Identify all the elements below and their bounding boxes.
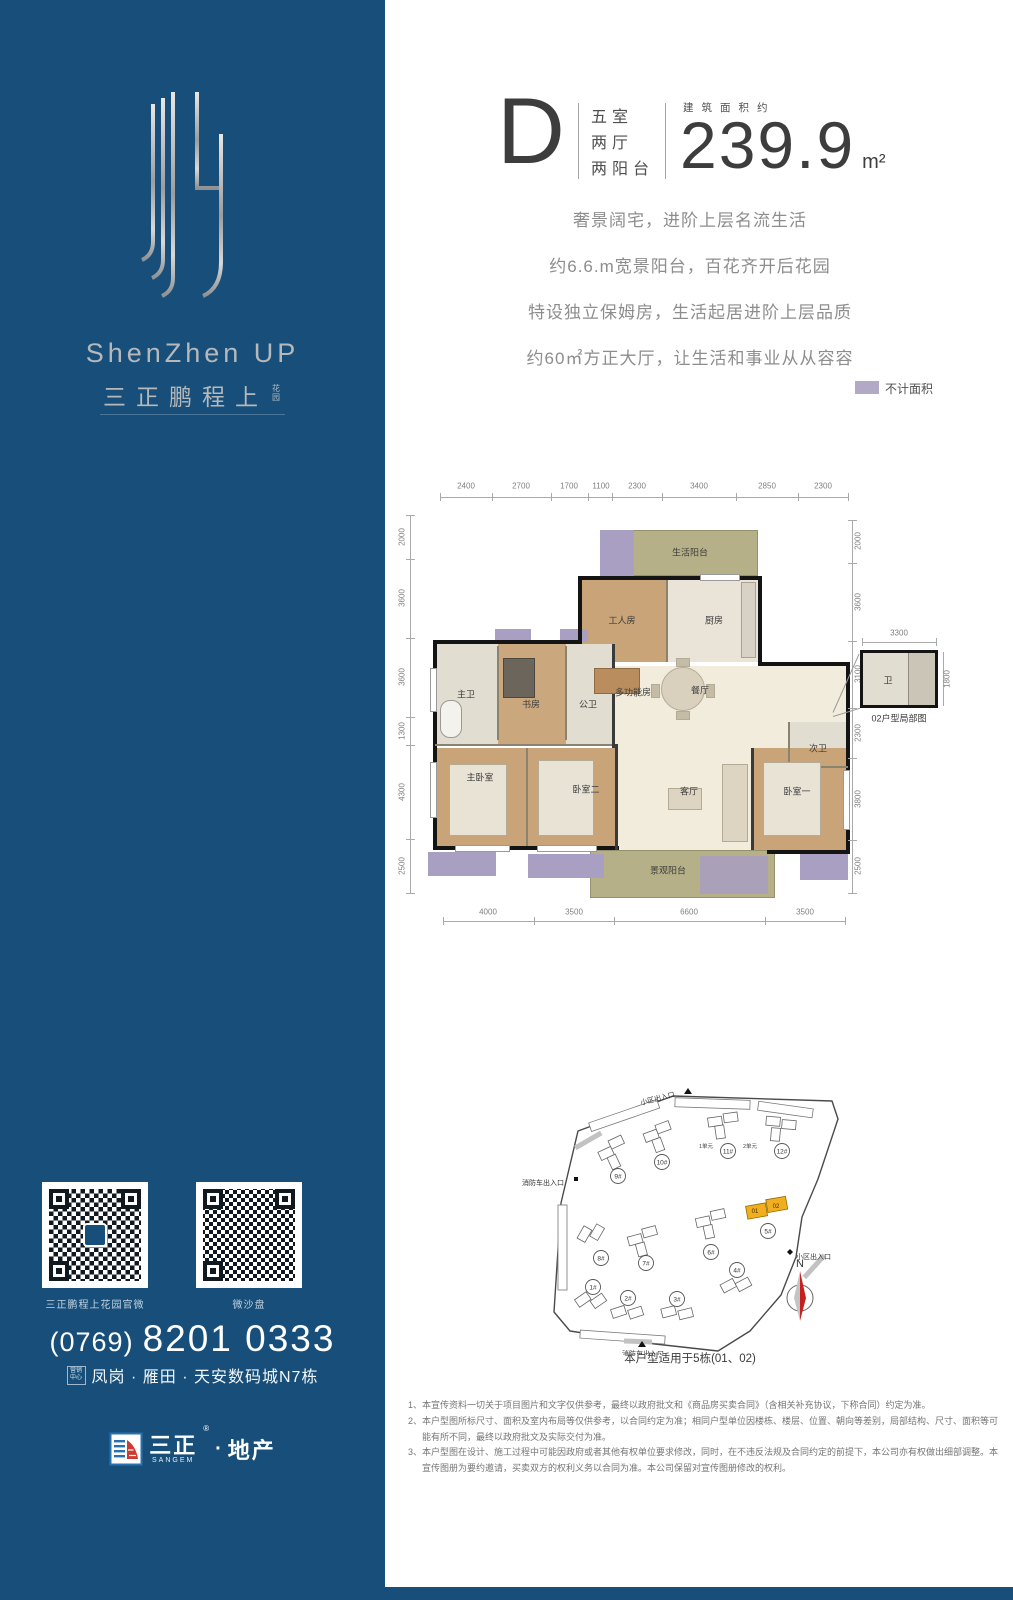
phone-area-code: (0769) [50, 1327, 134, 1358]
bed [763, 762, 821, 836]
room-public-bath [566, 644, 612, 744]
address-text: 凤岗 · 雁田 · 天安数码城N7栋 [92, 1363, 319, 1387]
header-divider [578, 103, 579, 179]
svg-text:12#: 12# [777, 1149, 788, 1156]
sidebar: ShenZhen UP 三正鹏程上 花园 三正鹏程上花园官微 微沙盘 [0, 0, 385, 1600]
room-label: 主卧室 [466, 771, 493, 784]
disclaimer-item: 3、本户型图在设计、施工过程中可能因政府或者其他有权单位要求修改，同时，在不违反… [408, 1445, 1006, 1477]
phone-main: 8201 0333 [143, 1318, 336, 1360]
qr-code-official [42, 1182, 148, 1288]
phone-number: (0769) 8201 0333 [0, 1318, 385, 1360]
developer-logo: 三正 SANGEM ® · 地产 [0, 1432, 385, 1466]
qr-center-logo [83, 1223, 107, 1247]
kitchen-counter [741, 582, 756, 658]
svg-text:1单元: 1单元 [699, 1142, 714, 1150]
siteplan: 01 02 1# 2# 3# 4# 5# 6# 7# 8# 9# 10# [500, 1055, 870, 1355]
nocount-area-patch [528, 854, 604, 878]
svg-text:7#: 7# [642, 1261, 650, 1268]
sofa [722, 764, 748, 842]
selling-points: 奢景阔宅，进阶上层名流生活 约6.6.m宽景阳台，百花齐开后花园 特设独立保姆房… [420, 206, 960, 390]
disclaimer-item: 2、本户型图所标尺寸、面积及室内布局等仅供参考，以合同约定为准；相同户型单位因楼… [408, 1414, 1006, 1446]
highlight-unit-02: 02 [773, 1204, 780, 1210]
disclaimer-item: 1、本宣传资料一切关于项目图片和文字仅供参考，最终以政府批文和《商品房买卖合同》… [408, 1398, 1006, 1414]
svg-text:8#: 8# [597, 1256, 605, 1263]
svg-text:3#: 3# [673, 1297, 681, 1304]
highlighted-building-5: 01 02 [745, 1196, 788, 1219]
siteplan-caption: 本户型适用于5栋(01、02) [605, 1350, 775, 1366]
room-label: 厨房 [705, 614, 723, 627]
north-label: N [796, 1258, 804, 1270]
layout-summary: 五室 两厅 两阳台 [591, 105, 654, 183]
brand-name-cn: 三正鹏程上 [103, 378, 268, 412]
svg-text:9#: 9# [614, 1174, 622, 1181]
north-arrow-icon: N [787, 1258, 813, 1321]
brand-name-en: ShenZhen UP [0, 338, 385, 369]
room-label: 工人房 [608, 614, 635, 627]
brand-name-suffix: 花园 [272, 378, 282, 402]
address-row: 营销 中心 凤岗 · 雁田 · 天安数码城N7栋 [0, 1363, 385, 1387]
svg-text:1#: 1# [589, 1285, 597, 1292]
svg-text:11#: 11# [723, 1149, 734, 1156]
room-label: 次卫 [809, 742, 827, 755]
room-label: 书房 [522, 698, 540, 711]
brand-divider [100, 414, 285, 415]
developer-name-en: SANGEM [152, 1457, 194, 1464]
svg-text:10#: 10# [657, 1160, 668, 1167]
building-clusters [574, 1112, 796, 1324]
qr-code-sandtable [196, 1182, 302, 1288]
room-label: 卧室一 [783, 785, 810, 798]
svg-text:2#: 2# [624, 1296, 632, 1303]
brochure-page: ShenZhen UP 三正鹏程上 花园 三正鹏程上花园官微 微沙盘 [0, 0, 1013, 1600]
nocount-area-patch [700, 856, 768, 894]
svg-text:4#: 4# [733, 1268, 741, 1275]
svg-text:5#: 5# [764, 1229, 772, 1236]
inset-caption: 02户型局部图 [871, 712, 926, 725]
nocount-area-patch [800, 852, 848, 880]
room-label: 餐厅 [691, 684, 709, 697]
svg-text:6#: 6# [707, 1250, 715, 1257]
nocount-area-patch [600, 530, 634, 576]
room-label: 生活阳台 [672, 546, 708, 559]
nocount-area-patch [428, 852, 496, 876]
room-label: 卧室二 [572, 783, 599, 796]
developer-name: 三正 [149, 1435, 197, 1457]
brand-monogram-icon [115, 92, 265, 327]
disclaimer: 1、本宣传资料一切关于项目图片和文字仅供参考，最终以政府批文和《商品房买卖合同》… [408, 1398, 1006, 1477]
bottom-strip [0, 1587, 1013, 1600]
bed [538, 760, 594, 836]
svg-text:2单元: 2单元 [743, 1142, 758, 1150]
highlight-unit-01: 01 [752, 1209, 759, 1215]
bathtub [440, 700, 462, 738]
registered-mark: ® [203, 1424, 209, 1433]
room-label: 公卫 [579, 698, 597, 711]
room-label: 卫 [883, 674, 892, 687]
qr-label-official: 三正鹏程上花园官微 [25, 1296, 165, 1311]
room-label: 客厅 [680, 785, 698, 798]
marketing-center-badge: 营销 中心 [67, 1366, 86, 1385]
room-label: 主卫 [457, 688, 475, 701]
desk [503, 658, 535, 698]
room-label: 多功能房 [615, 686, 651, 699]
header-divider [665, 103, 666, 179]
entrance-left: 消防车出入口 [522, 1178, 564, 1187]
developer-logo-icon [109, 1432, 143, 1466]
area-unit: m² [862, 151, 885, 174]
legend-swatch [855, 381, 879, 394]
room-label: 景观阳台 [650, 864, 686, 877]
unit-type-letter: D [497, 84, 565, 178]
developer-type: 地产 [228, 1433, 276, 1465]
legend-label: 不计面积 [885, 380, 933, 397]
area-value: 239.9 [680, 112, 855, 178]
qr-label-sandtable: 微沙盘 [179, 1296, 319, 1311]
